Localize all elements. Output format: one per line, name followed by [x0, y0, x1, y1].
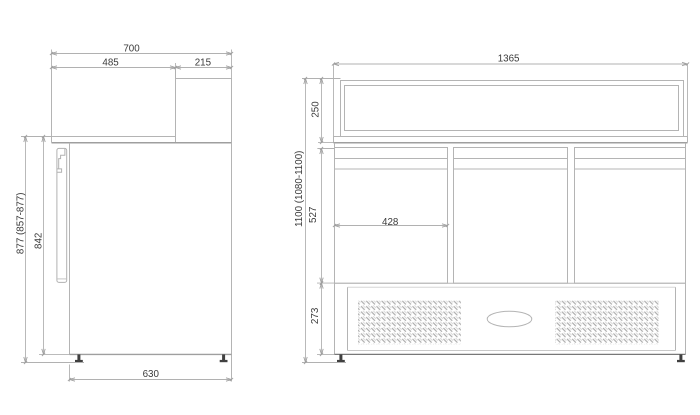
svg-text:877 (857-877): 877 (857-877) — [16, 193, 27, 255]
svg-text:700: 700 — [123, 44, 140, 55]
svg-text:250: 250 — [310, 101, 321, 118]
svg-text:273: 273 — [310, 307, 321, 324]
svg-text:842: 842 — [33, 233, 44, 249]
svg-text:215: 215 — [195, 58, 212, 69]
svg-text:1100 (1080-1100): 1100 (1080-1100) — [294, 151, 305, 227]
svg-text:527: 527 — [308, 207, 319, 223]
svg-text:1365: 1365 — [498, 54, 520, 65]
svg-text:630: 630 — [143, 369, 160, 380]
svg-text:428: 428 — [382, 217, 399, 228]
svg-text:485: 485 — [102, 58, 119, 69]
